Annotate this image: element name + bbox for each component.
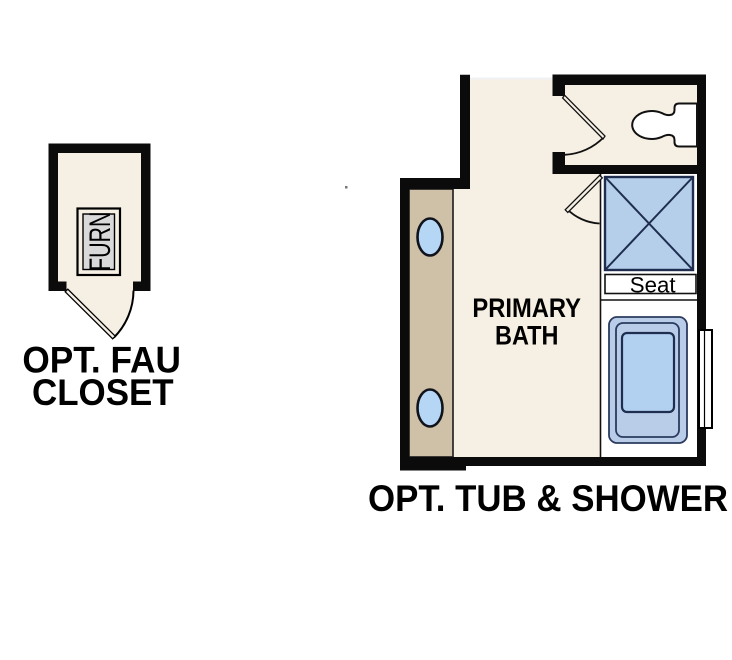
svg-text:CLOSET: CLOSET bbox=[32, 372, 174, 413]
svg-text:BATH: BATH bbox=[495, 320, 559, 350]
svg-text:Seat: Seat bbox=[630, 272, 677, 297]
svg-text:PRIMARY: PRIMARY bbox=[472, 293, 581, 323]
svg-text:FURN: FURN bbox=[84, 212, 117, 272]
svg-text:OPT. TUB & SHOWER: OPT. TUB & SHOWER bbox=[368, 478, 728, 519]
